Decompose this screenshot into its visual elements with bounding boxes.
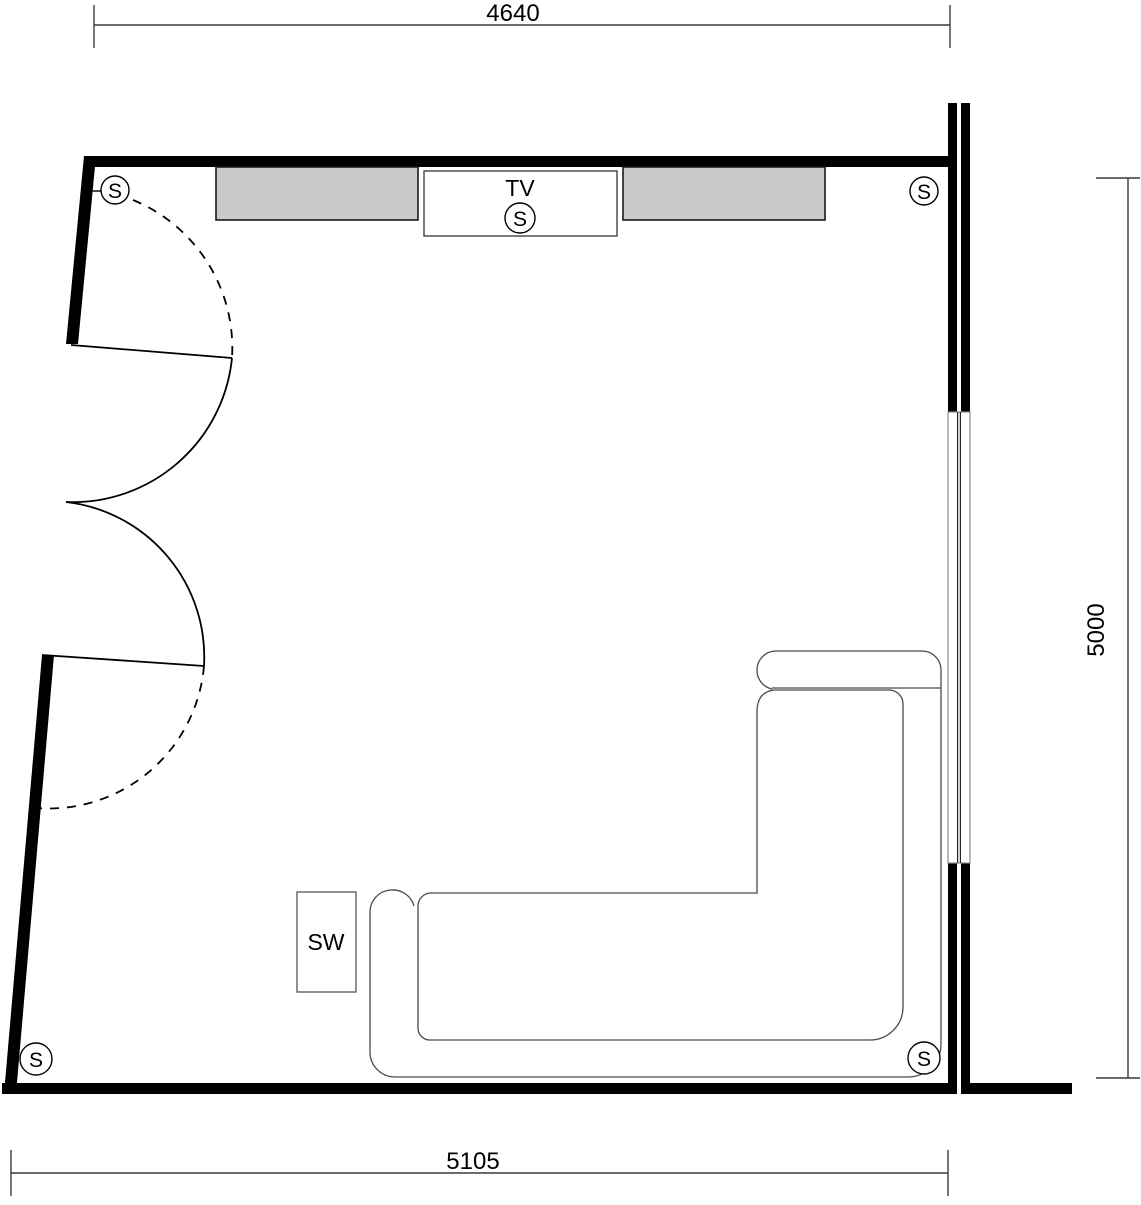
sofa [370, 651, 941, 1077]
floor-plan-canvas: 4640 5000 5105 [0, 0, 1141, 1200]
wall-right-upper-outer [961, 103, 970, 412]
wall-bottom-right-stub [961, 1083, 1072, 1094]
wall-right-upper-inner [948, 103, 957, 412]
wall-right-lower-outer [961, 863, 970, 1094]
window-frame [948, 412, 970, 863]
door-leaf-lower [42, 655, 204, 666]
speakers: S S S S [20, 176, 940, 1075]
speaker-letter-top-left: S [108, 180, 122, 203]
floor-plan-svg: 4640 5000 5105 [0, 0, 1141, 1200]
door-swing-solid-upper [66, 358, 232, 502]
cabinet-left [216, 167, 418, 220]
door-leaf-upper [71, 345, 232, 358]
wall-right-lower-inner [948, 863, 957, 1094]
subwoofer-label: SW [307, 929, 344, 955]
wall-left-lower [4, 655, 54, 1094]
dimension-bottom-value: 5105 [446, 1148, 499, 1175]
double-door [36, 200, 232, 809]
door-swing-dashed-upper [133, 200, 232, 358]
wall-bottom [2, 1083, 949, 1094]
tv-unit: TV S [424, 171, 617, 236]
tv-label: TV [505, 175, 535, 201]
wall-left-upper [66, 156, 96, 344]
speaker-letter-tv: S [513, 208, 527, 231]
cabinet-right [623, 167, 825, 220]
speaker-letter-top-right: S [917, 181, 931, 204]
sofa-outer-outline [370, 651, 941, 1077]
speaker-letter-bottom-left: S [29, 1049, 43, 1072]
dimension-right-value: 5000 [1083, 603, 1110, 656]
dimension-top-value: 4640 [486, 0, 539, 27]
door-swing-solid-lower [66, 502, 204, 666]
walls [2, 103, 1072, 1094]
subwoofer-unit: SW [297, 892, 356, 992]
window-right [948, 412, 970, 863]
door-swing-dashed-lower [36, 666, 204, 809]
sofa-seat-outline [418, 690, 903, 1040]
speaker-letter-bottom-right: S [917, 1048, 931, 1071]
wall-top [84, 156, 949, 167]
